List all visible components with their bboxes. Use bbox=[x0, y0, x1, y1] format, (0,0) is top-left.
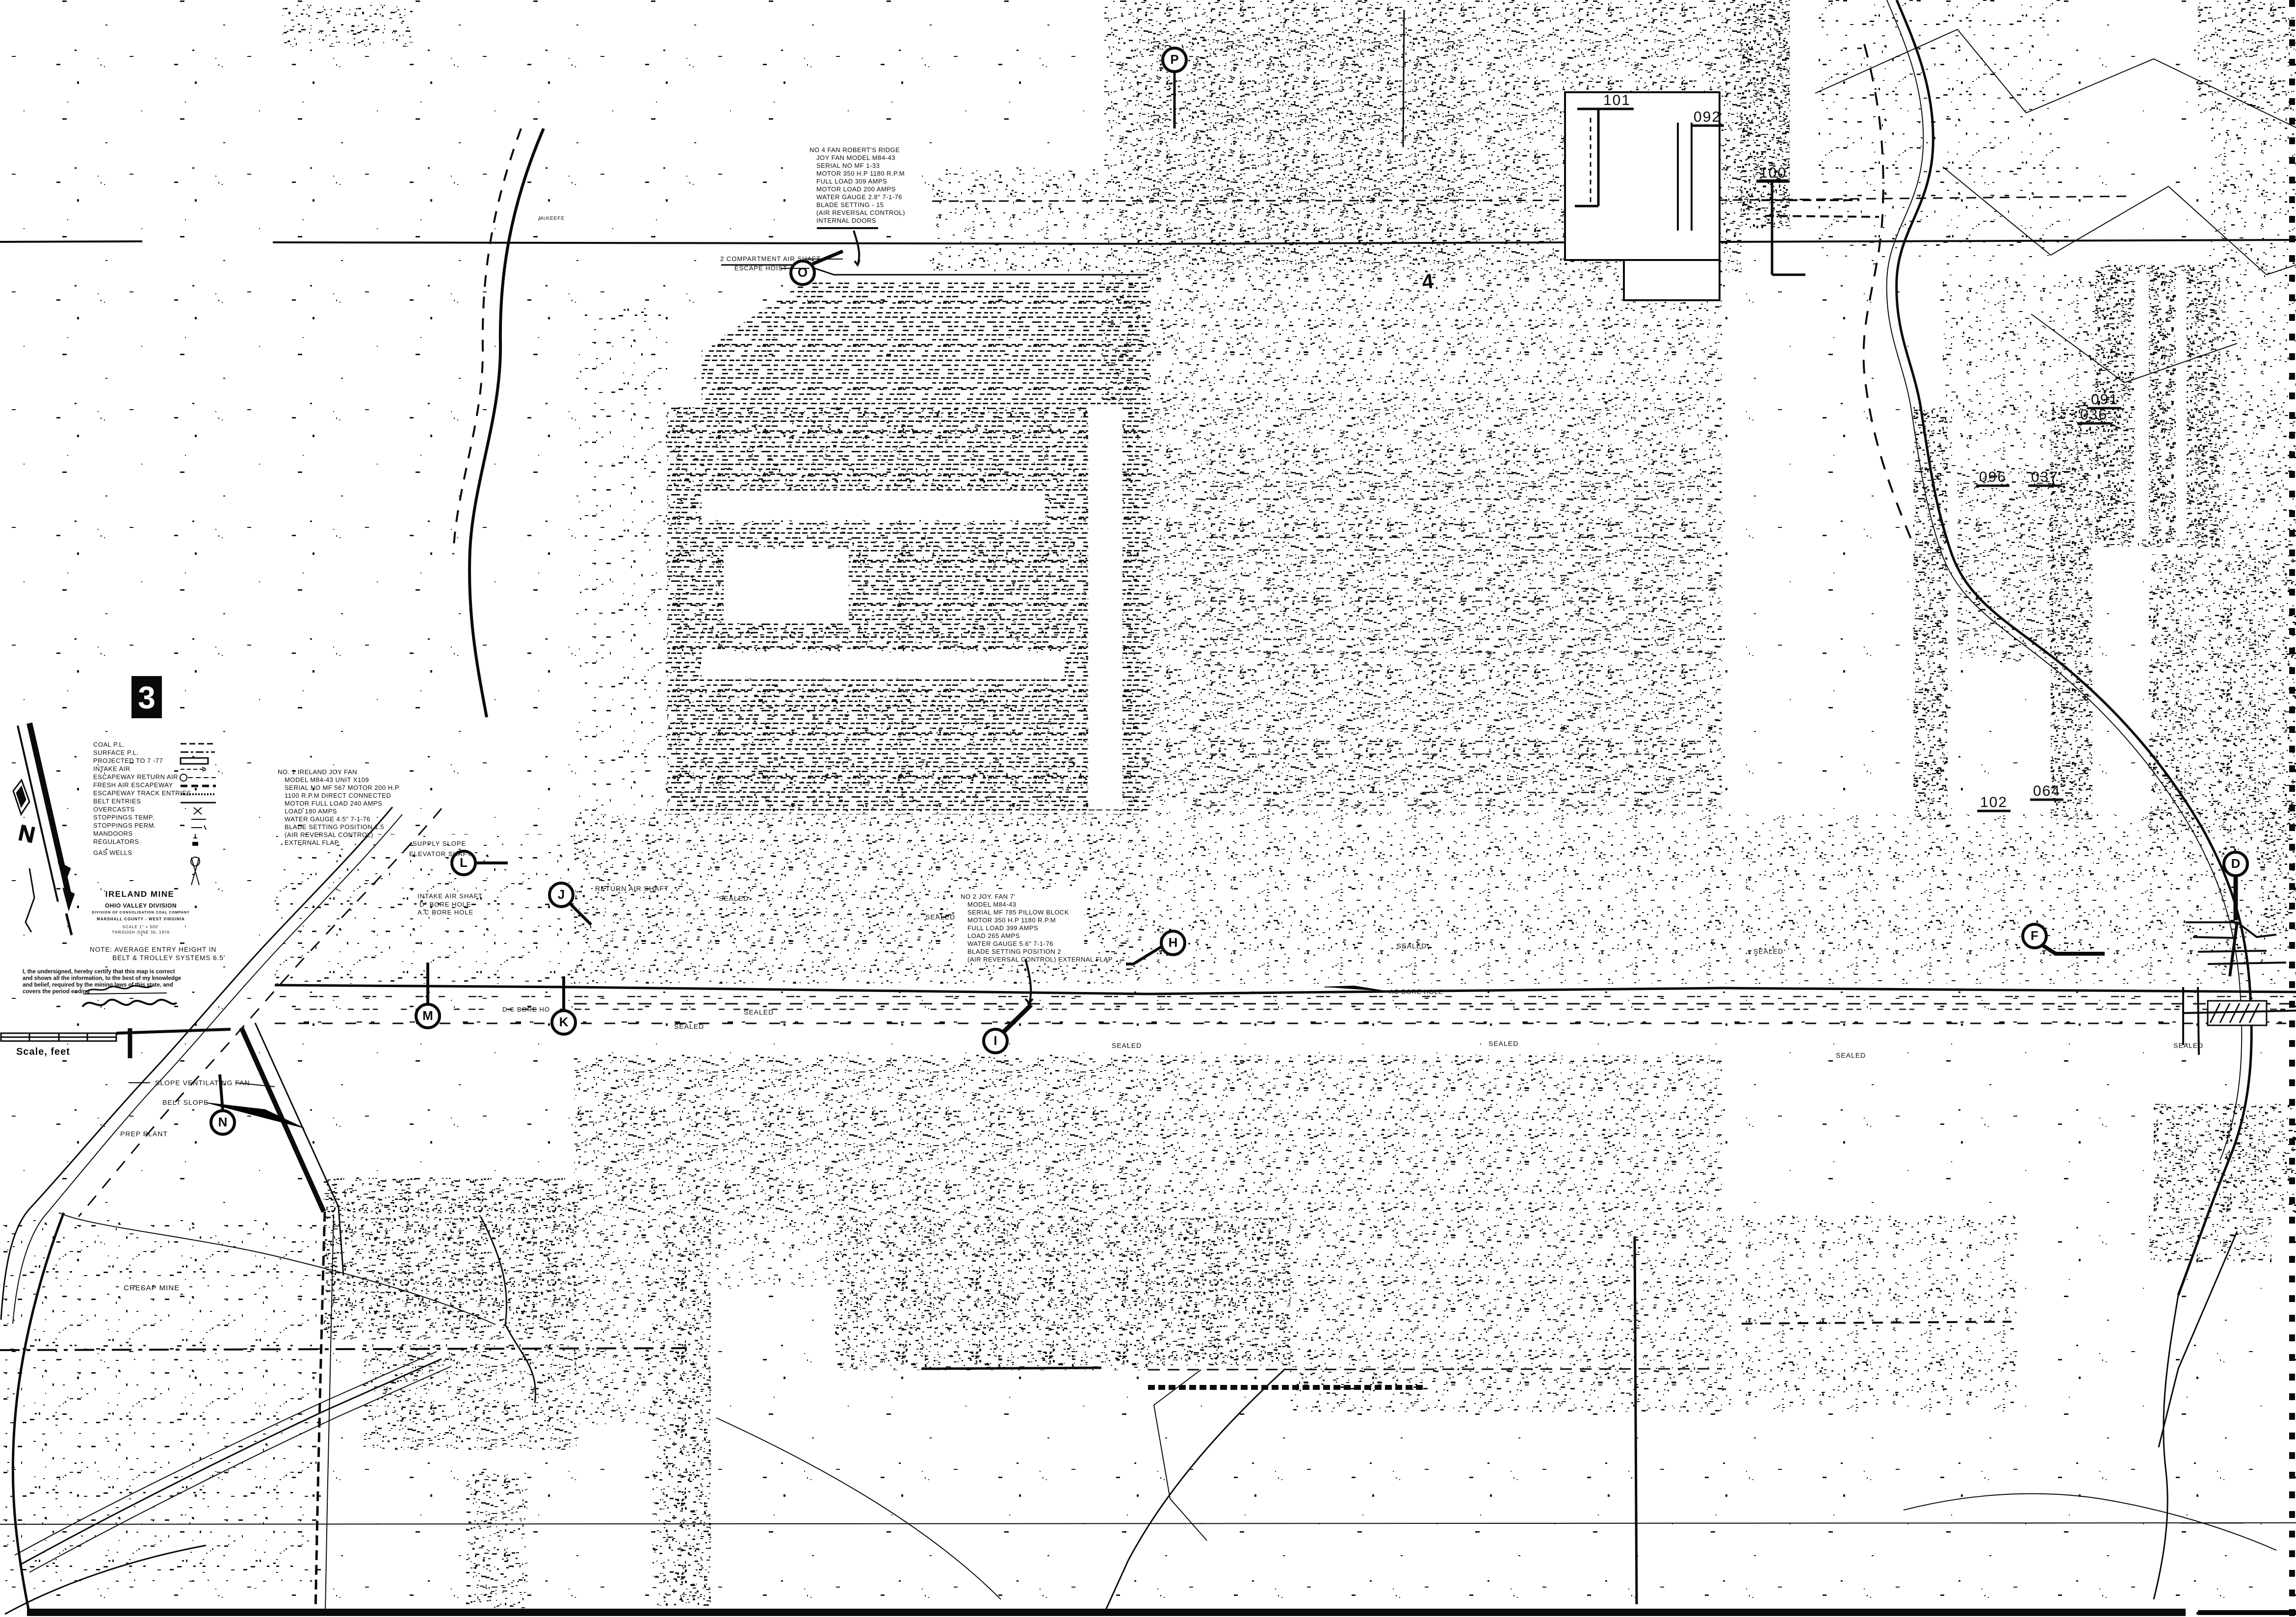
svg-text:D: D bbox=[2231, 856, 2241, 871]
svg-text:AC BORE HOLE: AC BORE HOLE bbox=[1389, 988, 1443, 995]
svg-text:SEALED: SEALED bbox=[1112, 1042, 1142, 1049]
svg-text:MARSHALL COUNTY - WEST VIRGINI: MARSHALL COUNTY - WEST VIRGINIA bbox=[97, 917, 185, 921]
svg-text:D.C BORE HO: D.C BORE HO bbox=[502, 1006, 550, 1013]
svg-text:ELEVATOR SHAFT: ELEVATOR SHAFT bbox=[409, 850, 471, 858]
svg-text:SUPPLY SLOPE: SUPPLY SLOPE bbox=[413, 840, 466, 847]
svg-text:SEALED: SEALED bbox=[744, 1008, 774, 1016]
svg-text:H: H bbox=[1169, 935, 1178, 950]
svg-text:ESCAPE HOIST: ESCAPE HOIST bbox=[734, 264, 787, 272]
svg-text:SEALED: SEALED bbox=[1488, 1040, 1518, 1047]
svg-text:SEALED: SEALED bbox=[1836, 1051, 1866, 1059]
svg-text:O: O bbox=[798, 265, 808, 280]
svg-text:SEALED: SEALED bbox=[674, 1022, 704, 1030]
svg-text:McKEEFE: McKEEFE bbox=[539, 216, 565, 221]
svg-text:N: N bbox=[218, 1115, 228, 1129]
svg-text:OVERCASTS: OVERCASTS bbox=[93, 806, 135, 813]
svg-text:SEALED: SEALED bbox=[719, 894, 749, 902]
svg-text:COAL P.L.: COAL P.L. bbox=[93, 741, 125, 748]
svg-text:CRESAP MINE: CRESAP MINE bbox=[124, 1284, 180, 1292]
svg-text:DIVISION OF CONSOLIDATION COAL: DIVISION OF CONSOLIDATION COAL COMPANY bbox=[92, 911, 189, 914]
svg-text:SEALED: SEALED bbox=[1753, 947, 1783, 955]
svg-text:096: 096 bbox=[1979, 469, 2007, 485]
svg-text:STOPPINGS TEMP.: STOPPINGS TEMP. bbox=[93, 814, 155, 821]
svg-text:I: I bbox=[993, 1033, 997, 1048]
svg-text:SEALED: SEALED bbox=[2173, 1042, 2203, 1049]
svg-text:GAS WELLS: GAS WELLS bbox=[93, 849, 132, 857]
svg-text:A.C BORE HOLE: A.C BORE HOLE bbox=[417, 909, 473, 916]
svg-text:102: 102 bbox=[1980, 794, 2008, 810]
svg-text:064: 064 bbox=[2033, 783, 2061, 799]
svg-text:092: 092 bbox=[1694, 109, 1721, 125]
svg-text:STOPPINGS PERM.: STOPPINGS PERM. bbox=[93, 822, 156, 829]
svg-text:IRELAND MINE: IRELAND MINE bbox=[105, 889, 175, 899]
svg-text:INTAKE AIR SHAFT: INTAKE AIR SHAFT bbox=[417, 892, 483, 900]
svg-text:3: 3 bbox=[138, 680, 156, 715]
svg-text:NOTE: AVERAGE ENTRY HEIGHT: NOTE: AVERAGE ENTRY HEIGHT IN bbox=[90, 946, 216, 953]
svg-text:037: 037 bbox=[2031, 469, 2059, 485]
svg-text:101: 101 bbox=[1603, 92, 1631, 108]
svg-text:BELT ENTRIES: BELT ENTRIES bbox=[93, 798, 141, 805]
svg-text:D″ BORE HOLE: D″ BORE HOLE bbox=[419, 901, 471, 908]
svg-text:J: J bbox=[558, 887, 565, 902]
svg-text:RETURN AIR SHAFT: RETURN AIR SHAFT bbox=[595, 885, 669, 892]
svg-text:F: F bbox=[2031, 928, 2038, 943]
svg-text:BELT SLOPE: BELT SLOPE bbox=[162, 1098, 209, 1106]
svg-text:M: M bbox=[422, 1008, 433, 1023]
svg-text:SURFACE P.L.: SURFACE P.L. bbox=[93, 749, 138, 756]
svg-text:REGULATORS: REGULATORS bbox=[93, 838, 139, 845]
svg-text:SCALE 1″ = 500′: SCALE 1″ = 500′ bbox=[123, 925, 159, 929]
svg-text:100: 100 bbox=[1759, 165, 1787, 181]
svg-text:SEALED: SEALED bbox=[925, 913, 955, 921]
svg-text:THROUGH JUNE 30, 1976: THROUGH JUNE 30, 1976 bbox=[112, 930, 170, 935]
svg-text:P: P bbox=[1170, 52, 1178, 67]
svg-text:BELT & TROLLEY SYSTEMS 6.5: BELT & TROLLEY SYSTEMS 6.5′ bbox=[112, 954, 225, 962]
svg-text:INTAKE AIR: INTAKE AIR bbox=[93, 765, 130, 773]
svg-text:036: 036 bbox=[2080, 407, 2108, 423]
svg-text:ESCAPEWAY TRACK ENTRIES: ESCAPEWAY TRACK ENTRIES bbox=[93, 789, 191, 797]
svg-text:091: 091 bbox=[2091, 391, 2118, 408]
svg-text:Scale, feet: Scale, feet bbox=[16, 1046, 70, 1057]
svg-text:K: K bbox=[559, 1015, 569, 1029]
svg-text:MANDOORS: MANDOORS bbox=[93, 830, 133, 837]
svg-text:PREP PLANT: PREP PLANT bbox=[120, 1130, 168, 1138]
svg-text:ESCAPEWAY RETURN AIR: ESCAPEWAY RETURN AIR bbox=[93, 773, 178, 781]
svg-text:NO 4 FAN ROBERT'S RIDGEJOY: NO 4 FAN ROBERT'S RIDGEJOY FAN MODEL M84… bbox=[809, 146, 905, 224]
svg-text:SEALED: SEALED bbox=[1397, 942, 1427, 950]
svg-text:PROJECTED TO 7 -77: PROJECTED TO 7 -77 bbox=[93, 757, 163, 764]
svg-text:FRESH AIR ESCAPEWAY: FRESH AIR ESCAPEWAY bbox=[93, 782, 173, 789]
svg-text:OHIO VALLEY DIVISION: OHIO VALLEY DIVISION bbox=[105, 902, 177, 909]
